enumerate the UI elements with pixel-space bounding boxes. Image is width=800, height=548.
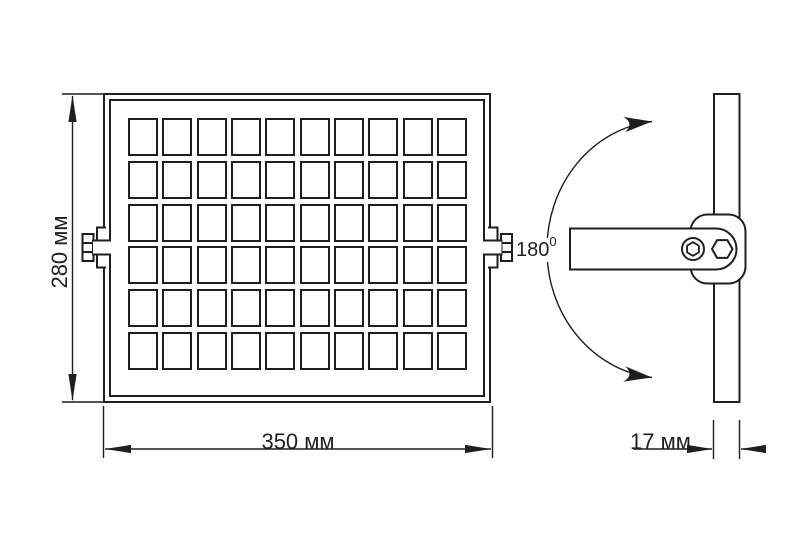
right-clip-notch (483, 242, 502, 254)
width-dimension-label: 350 мм (261, 431, 334, 453)
drawing-overlay (0, 0, 800, 548)
width-arrow-right-icon (465, 445, 491, 453)
right-mount-clip (483, 228, 513, 268)
left-clip-notch (93, 242, 112, 254)
rotation-angle-value: 180 (516, 239, 549, 261)
rotation-angle-label: 1800 (516, 238, 564, 262)
left-mount-clip (83, 228, 113, 268)
height-arrow-down-icon (68, 374, 76, 401)
hex-nut-icon (712, 240, 733, 258)
right-clip-tabs (501, 234, 512, 261)
height-dimension-label: 280 мм (49, 215, 71, 288)
left-clip-tabs (83, 234, 94, 261)
thickness-arrow-left-icon (741, 445, 767, 453)
width-arrow-left-icon (105, 445, 131, 453)
dimension-drawing: 280 мм 350 мм 17 мм 1800 (0, 0, 800, 548)
thickness-dimension-label: 17 мм (630, 431, 691, 453)
bolt-socket-hex-icon (687, 242, 699, 256)
rotation-degree-mark: 0 (549, 234, 556, 249)
height-arrow-up-icon (68, 95, 76, 122)
